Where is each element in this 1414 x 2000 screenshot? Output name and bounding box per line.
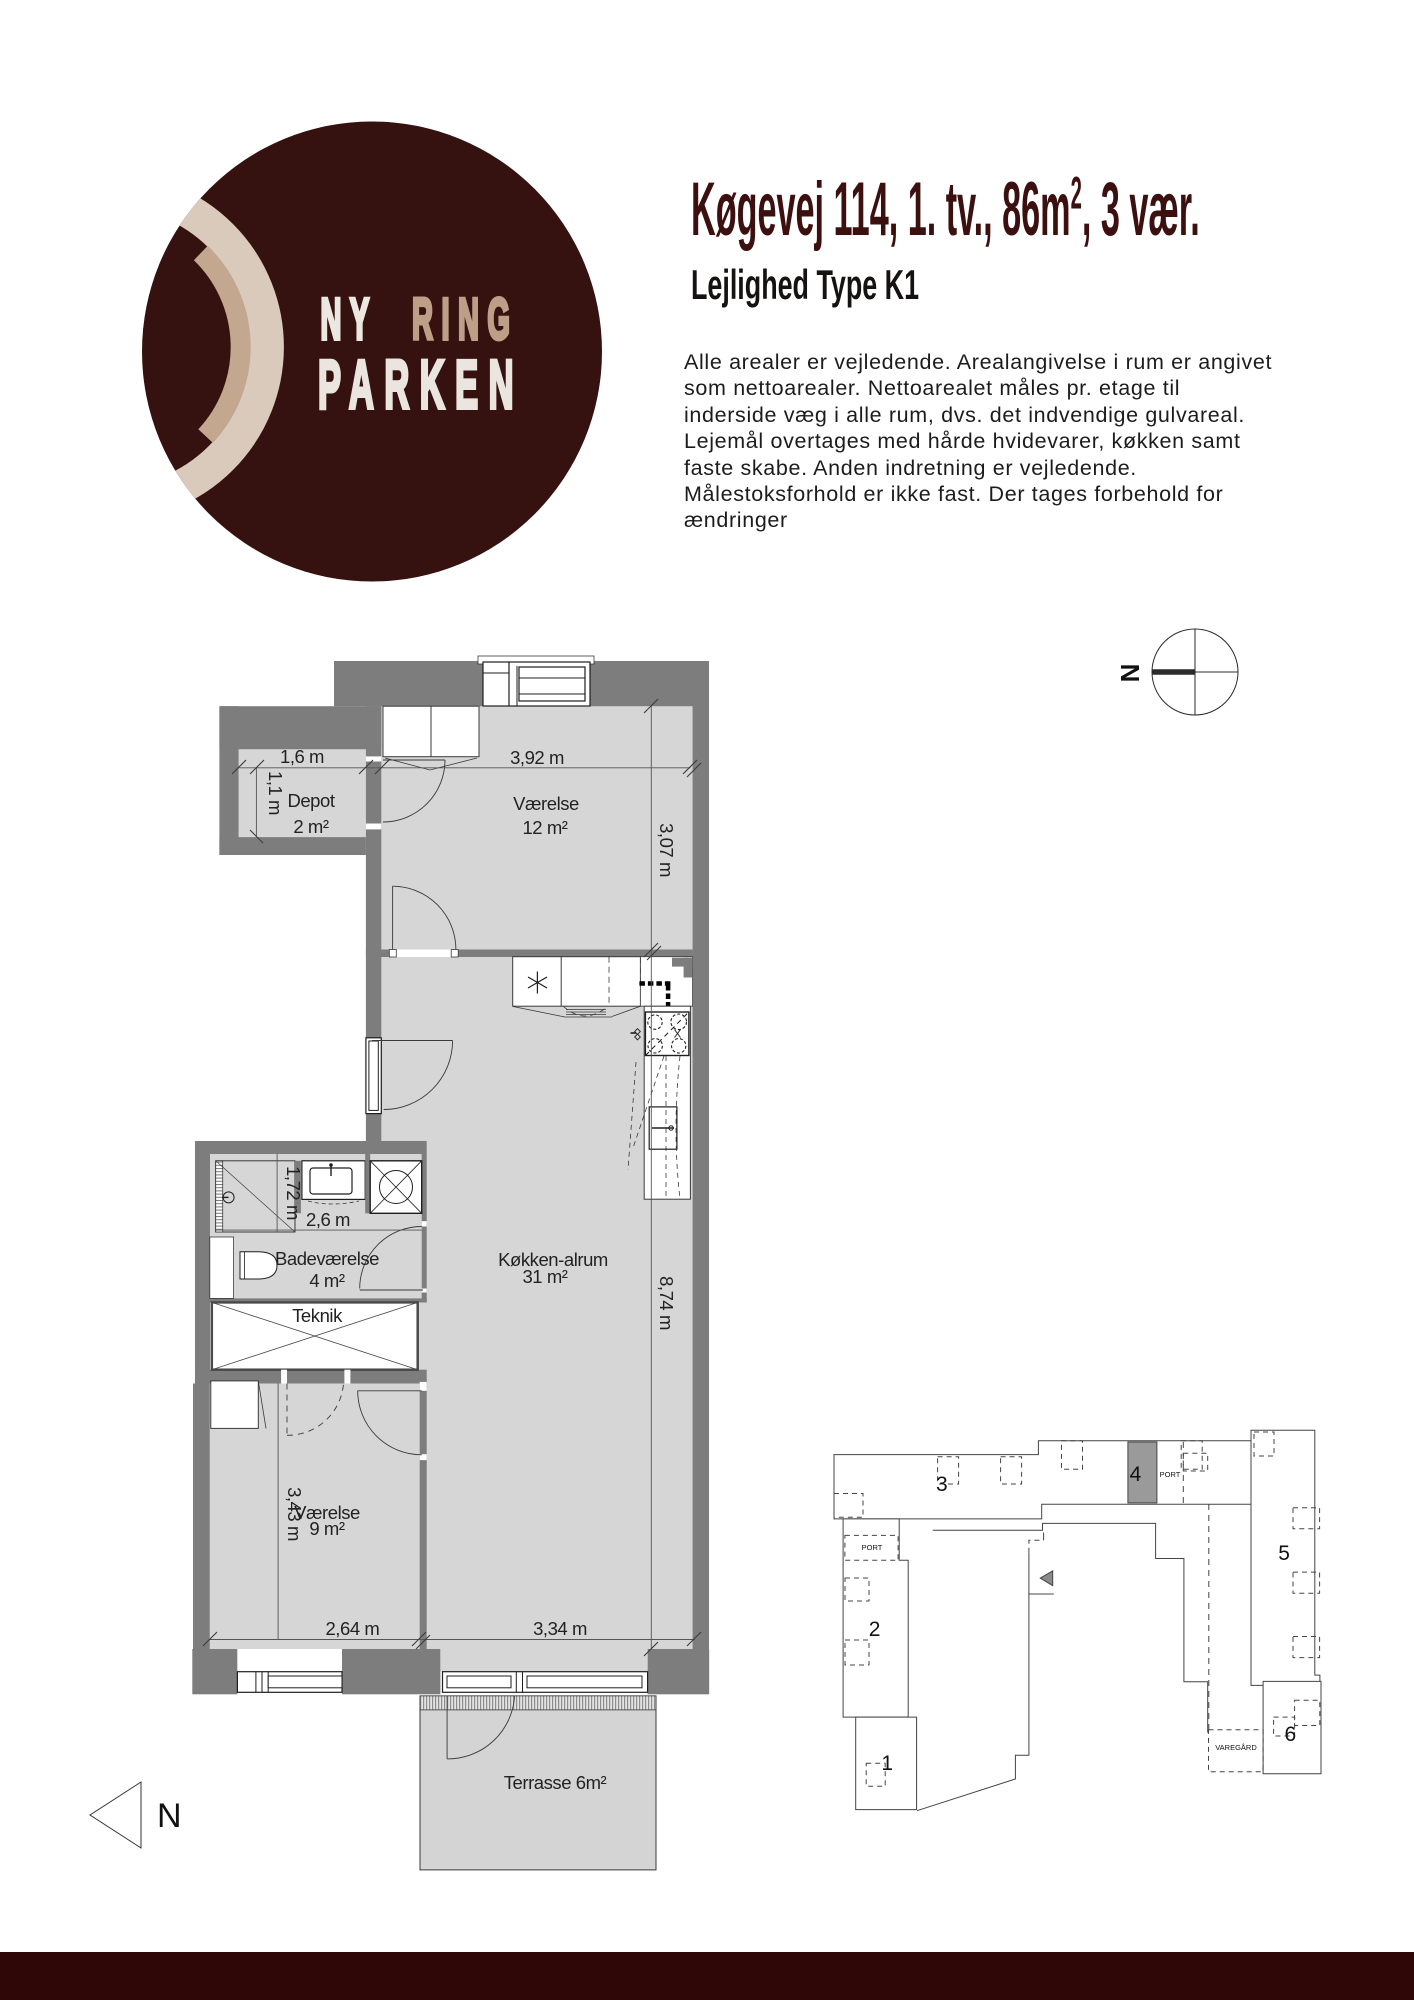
svg-text:1,6 m: 1,6 m xyxy=(280,746,324,767)
svg-text:N: N xyxy=(157,1797,182,1835)
svg-text:VAREGÅRD: VAREGÅRD xyxy=(1215,1743,1257,1752)
svg-text:2 m²: 2 m² xyxy=(293,816,328,837)
svg-text:1,72 m: 1,72 m xyxy=(283,1166,304,1220)
svg-text:3,07 m: 3,07 m xyxy=(656,823,677,877)
svg-text:PORT: PORT xyxy=(862,1543,883,1552)
svg-text:2: 2 xyxy=(869,1618,881,1641)
svg-text:2,64 m: 2,64 m xyxy=(325,1618,379,1639)
svg-text:Teknik: Teknik xyxy=(292,1305,343,1326)
svg-text:N: N xyxy=(1115,664,1145,683)
svg-text:1: 1 xyxy=(881,1752,893,1775)
svg-text:Værelse: Værelse xyxy=(513,793,579,814)
svg-text:9 m²: 9 m² xyxy=(309,1518,344,1539)
svg-text:1,1 m: 1,1 m xyxy=(265,771,286,815)
svg-text:Depot: Depot xyxy=(287,790,334,811)
svg-text:3,34 m: 3,34 m xyxy=(533,1618,587,1639)
svg-text:3: 3 xyxy=(936,1473,948,1496)
svg-text:Terrasse 6m²: Terrasse 6m² xyxy=(504,1772,607,1793)
svg-text:4 m²: 4 m² xyxy=(309,1270,344,1291)
svg-text:PORT: PORT xyxy=(1160,1470,1181,1479)
svg-text:3,92 m: 3,92 m xyxy=(510,747,564,768)
svg-text:31 m²: 31 m² xyxy=(522,1266,567,1287)
svg-text:4: 4 xyxy=(1130,1463,1142,1486)
svg-text:5: 5 xyxy=(1278,1542,1290,1565)
svg-text:2,6 m: 2,6 m xyxy=(306,1209,350,1230)
svg-text:8,74 m: 8,74 m xyxy=(656,1276,677,1330)
svg-text:12 m²: 12 m² xyxy=(522,817,567,838)
svg-text:6: 6 xyxy=(1285,1723,1297,1746)
svg-text:Badeværelse: Badeværelse xyxy=(275,1248,379,1269)
